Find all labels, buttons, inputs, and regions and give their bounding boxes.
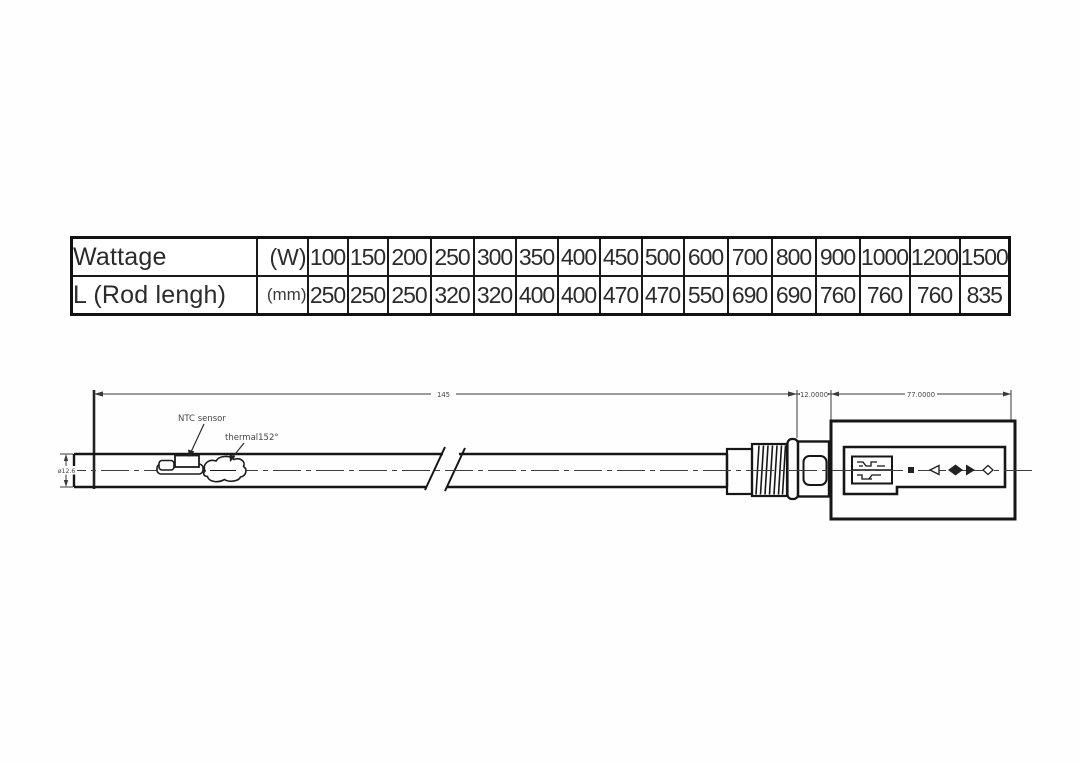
dim-thread-label: 12.0000 bbox=[800, 391, 828, 399]
dim-arrow bbox=[64, 480, 68, 487]
dim-housing-label: 77.0000 bbox=[907, 391, 935, 399]
dim-arrow bbox=[788, 391, 797, 396]
pcb-trace-top bbox=[857, 462, 885, 466]
dim-arrow bbox=[831, 392, 839, 397]
callout-labels: NTC sensor thermal152° bbox=[178, 414, 279, 443]
thermal-leader bbox=[232, 443, 244, 458]
open-left-triangle-marker bbox=[930, 466, 939, 475]
dim-arrow bbox=[94, 391, 103, 396]
rod-left-segment bbox=[74, 454, 443, 487]
page: Wattage (W) 100 150 200 250 300 350 400 … bbox=[0, 0, 1080, 763]
pcb-trace-bottom bbox=[857, 475, 881, 479]
ntc-sensor-label: NTC sensor bbox=[178, 414, 226, 424]
flange-disc bbox=[788, 439, 799, 499]
ntc-sensor-body bbox=[175, 456, 199, 468]
thermal-cutoff-blob bbox=[204, 456, 246, 481]
dim-total-label: 145 bbox=[437, 391, 450, 399]
square-marker bbox=[908, 467, 914, 473]
dim-arrow bbox=[1003, 392, 1011, 397]
sensor-plug bbox=[159, 461, 174, 471]
collar bbox=[727, 449, 752, 494]
internal-components bbox=[157, 456, 246, 482]
open-diamond-marker bbox=[983, 466, 993, 475]
thermal-label: thermal152° bbox=[225, 433, 279, 443]
technical-drawing: 145 12.0000 77.0000 ø12.6 NTC sensor the… bbox=[0, 0, 1080, 763]
filled-right-triangle-marker bbox=[966, 465, 975, 476]
dim-arrow bbox=[64, 454, 68, 461]
ntc-leader bbox=[191, 424, 204, 452]
filled-diamond-marker bbox=[948, 465, 963, 476]
diameter-label: ø12.6 bbox=[58, 468, 76, 475]
fitting-assembly bbox=[727, 439, 829, 499]
